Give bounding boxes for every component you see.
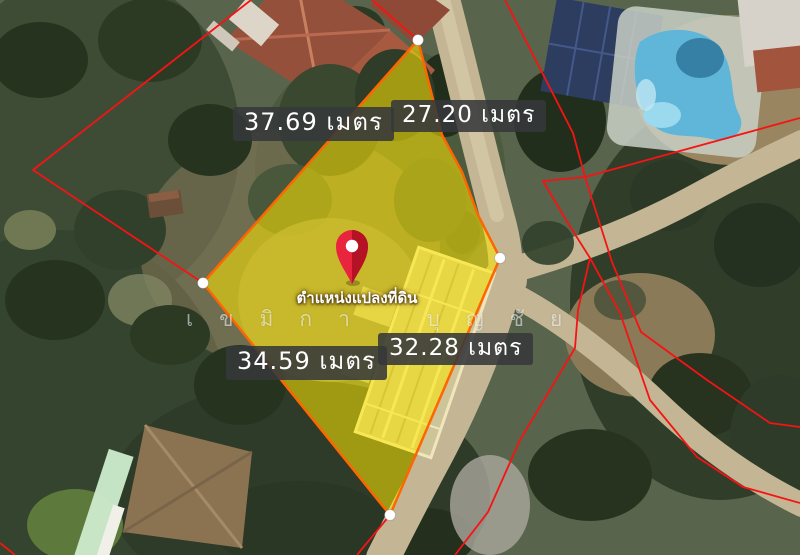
vertex-marker-bottom[interactable] <box>385 510 396 521</box>
vertex-marker-left[interactable] <box>198 278 209 289</box>
measurement-label-bottom-right: 32.28 เมตร <box>378 333 533 365</box>
satellite-map <box>0 0 800 555</box>
watermark: เขมิกา บุญชัย <box>186 303 588 336</box>
shed <box>146 190 183 218</box>
vertex-marker-right[interactable] <box>495 253 506 264</box>
map-viewport[interactable]: 37.69 เมตร 27.20 เมตร 34.59 เมตร 32.28 เ… <box>0 0 800 555</box>
measurement-label-top-right: 27.20 เมตร <box>391 100 546 132</box>
measurement-label-top-left: 37.69 เมตร <box>233 107 394 141</box>
measurement-label-bottom-left: 34.59 เมตร <box>226 346 387 380</box>
vertex-marker-top[interactable] <box>413 35 424 46</box>
